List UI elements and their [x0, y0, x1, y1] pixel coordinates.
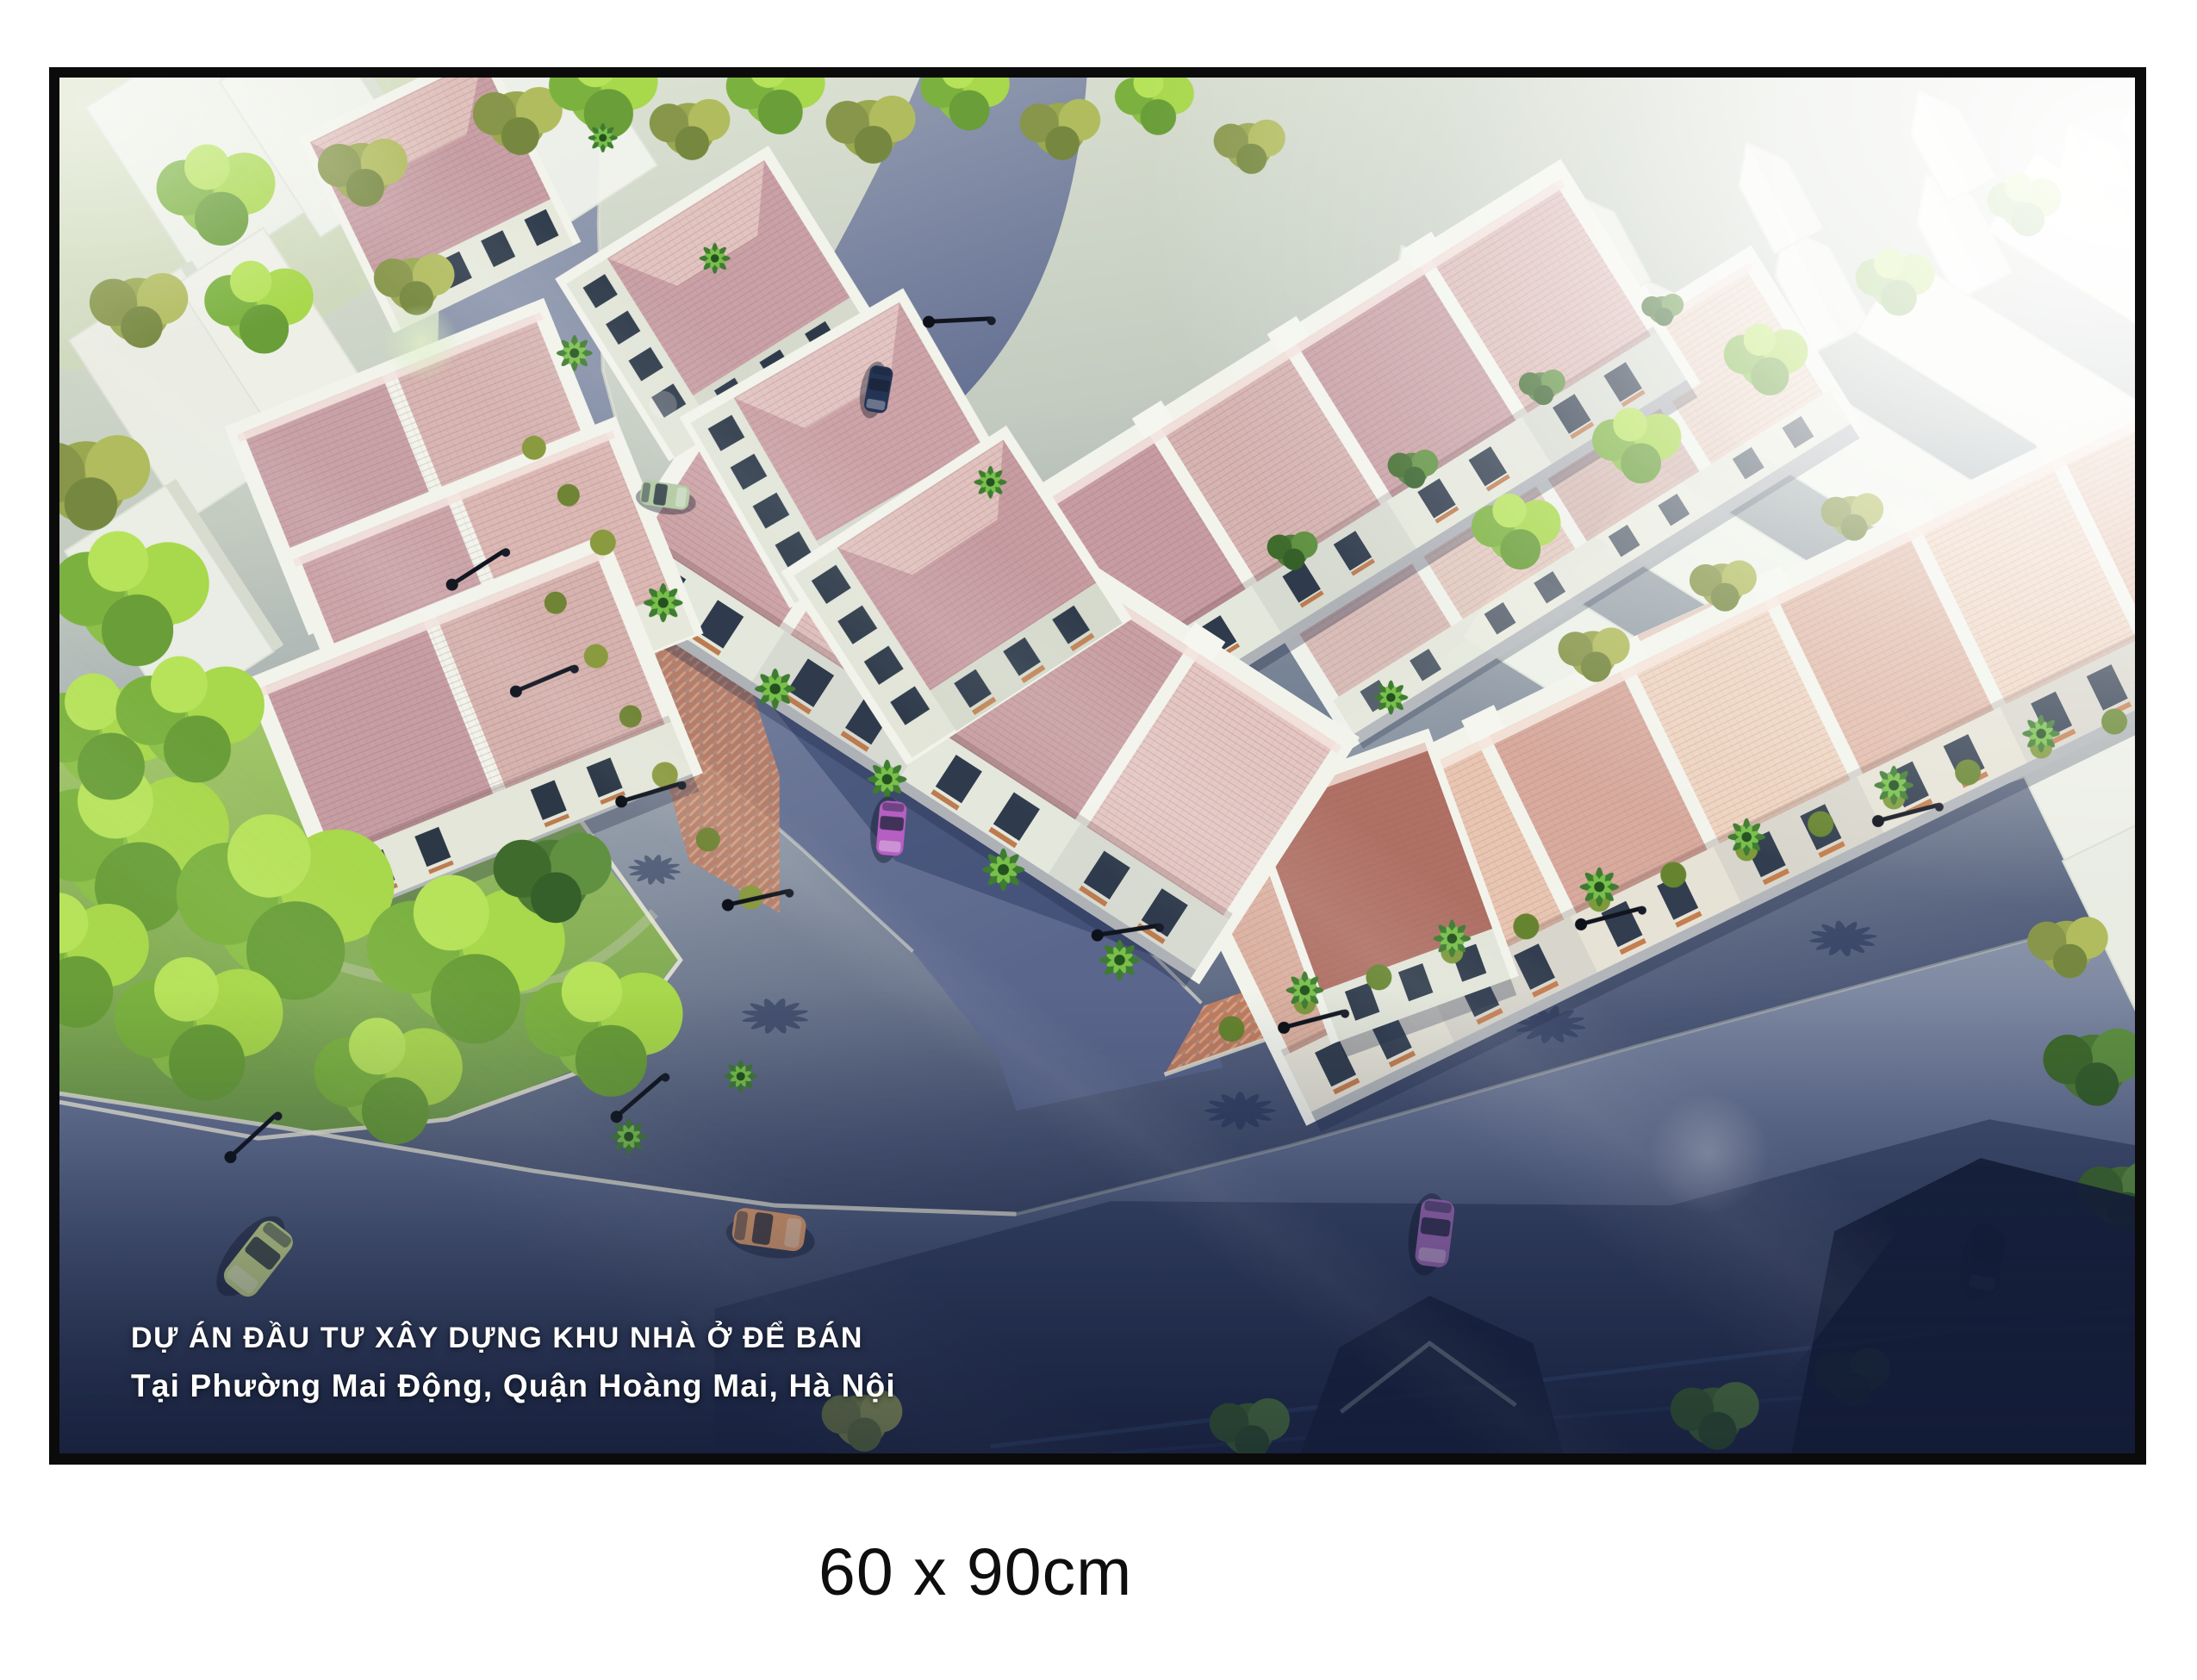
- poster-frame: [49, 67, 2146, 1465]
- size-caption: 60 x 90cm: [818, 1534, 1132, 1611]
- project-title-line2: Tại Phường Mai Động, Quận Hoàng Mai, Hà …: [131, 1368, 896, 1404]
- poster-page: DỰ ÁN ĐẦU TƯ XÂY DỰNG KHU NHÀ Ở ĐỂ BÁN T…: [0, 0, 2197, 1680]
- aerial-render-scene: [59, 78, 2135, 1453]
- aerial-render: [59, 78, 2135, 1453]
- lens-flare: [383, 304, 460, 382]
- project-title-line1: DỰ ÁN ĐẦU TƯ XÂY DỰNG KHU NHÀ Ở ĐỂ BÁN: [131, 1322, 863, 1355]
